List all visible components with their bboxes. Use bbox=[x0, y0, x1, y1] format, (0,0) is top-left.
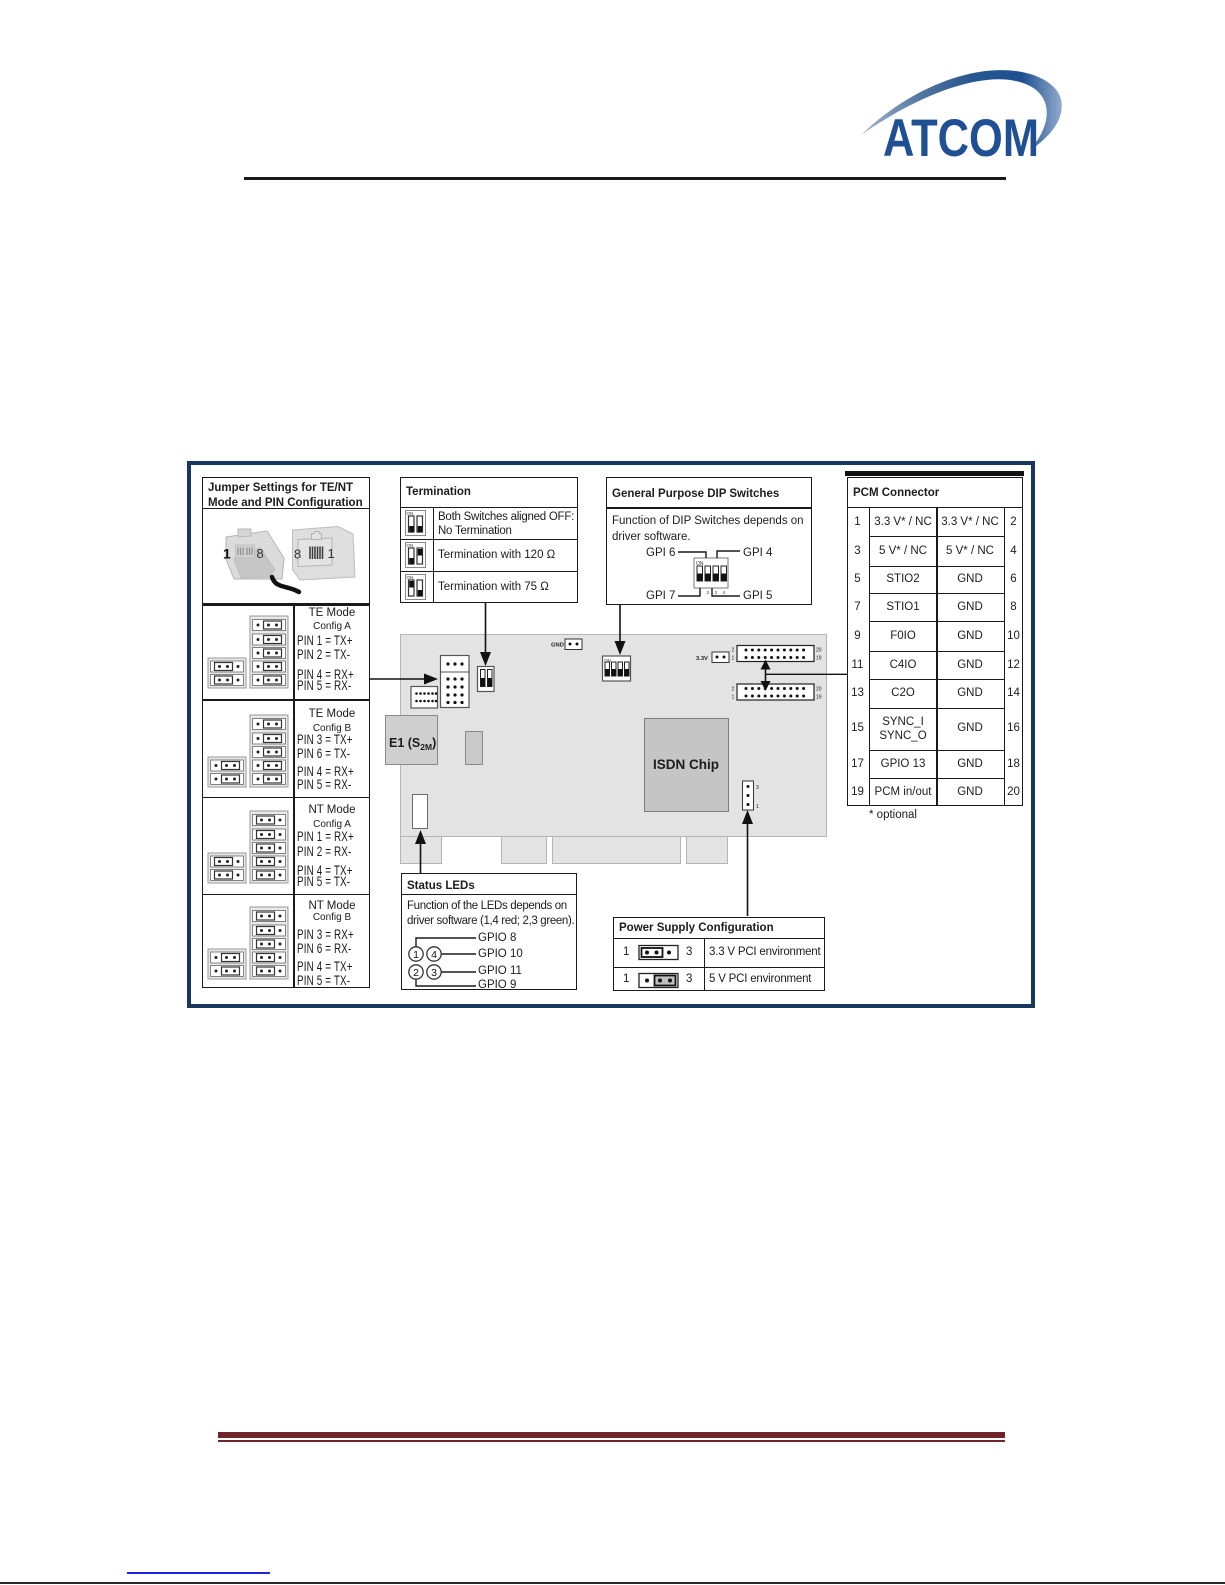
svg-text:1: 1 bbox=[756, 804, 759, 810]
svg-text:8: 8 bbox=[257, 546, 264, 561]
svg-text:19: 19 bbox=[816, 695, 822, 701]
svg-text:1: 1 bbox=[732, 656, 735, 662]
svg-text:1: 1 bbox=[328, 546, 335, 561]
svg-text:19: 19 bbox=[816, 656, 822, 662]
svg-text:3: 3 bbox=[431, 967, 437, 979]
svg-text:3: 3 bbox=[756, 785, 759, 791]
svg-text:8: 8 bbox=[294, 547, 301, 562]
svg-text:GND: GND bbox=[551, 643, 564, 649]
svg-text:2: 2 bbox=[732, 648, 735, 654]
svg-text:3.3V: 3.3V bbox=[696, 656, 708, 662]
svg-text:4: 4 bbox=[431, 949, 437, 961]
svg-text:4: 4 bbox=[723, 590, 726, 595]
svg-text:3: 3 bbox=[715, 590, 718, 595]
svg-text:1: 1 bbox=[732, 695, 735, 701]
svg-text:20: 20 bbox=[816, 687, 822, 693]
svg-text:2: 2 bbox=[413, 967, 419, 979]
svg-text:1: 1 bbox=[223, 546, 231, 562]
svg-text:1: 1 bbox=[413, 949, 419, 961]
svg-text:2: 2 bbox=[732, 687, 735, 693]
svg-text:2: 2 bbox=[707, 590, 710, 595]
svg-text:20: 20 bbox=[816, 648, 822, 654]
